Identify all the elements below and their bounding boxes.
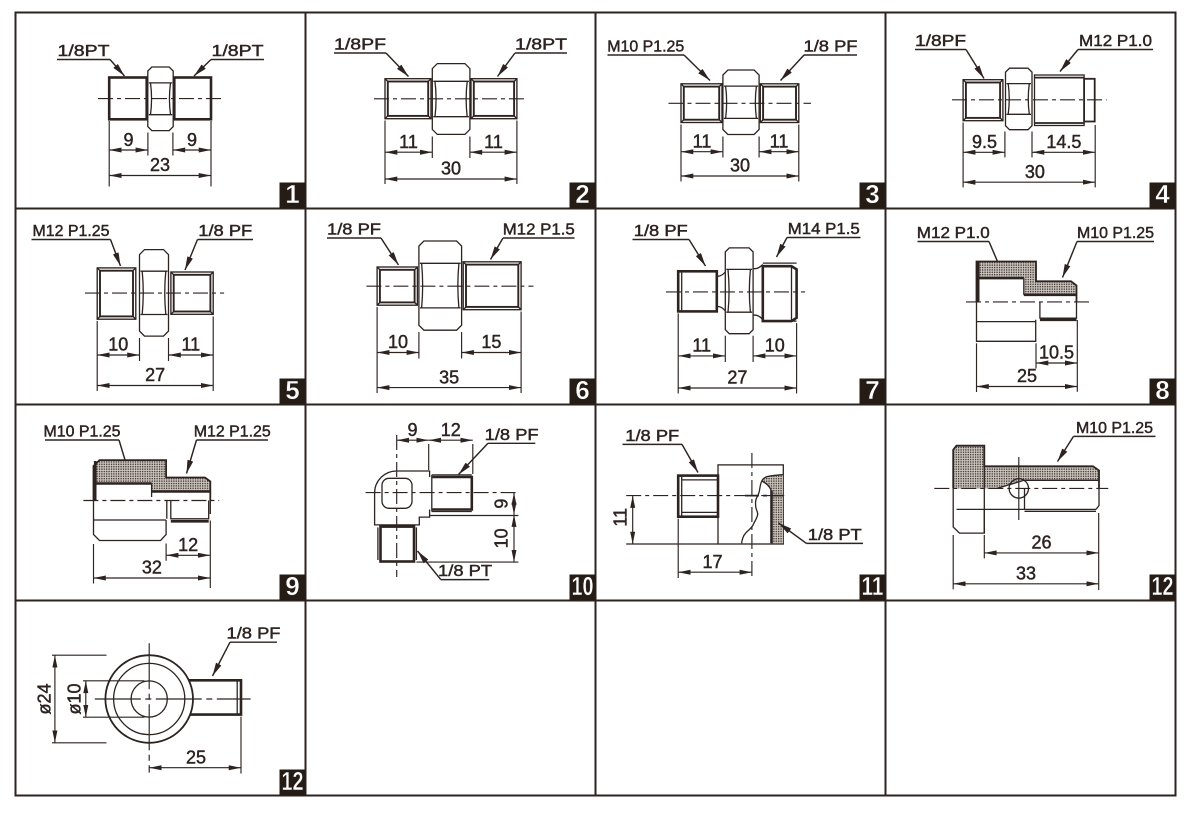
svg-text:M10 P1.25: M10 P1.25 [1077, 225, 1154, 242]
svg-text:1/8 PT: 1/8 PT [808, 527, 862, 544]
svg-text:30: 30 [730, 156, 750, 176]
svg-text:M10 P1.25: M10 P1.25 [607, 39, 684, 56]
svg-text:M12 P1.25: M12 P1.25 [33, 223, 110, 240]
svg-text:27: 27 [727, 368, 747, 388]
svg-text:1/8 PF: 1/8 PF [198, 223, 252, 240]
svg-text:14.5: 14.5 [1046, 132, 1081, 152]
svg-text:ø24: ø24 [34, 683, 54, 714]
svg-text:10: 10 [388, 332, 408, 352]
svg-text:9: 9 [187, 130, 197, 150]
svg-text:1/8PF: 1/8PF [915, 33, 966, 50]
svg-text:10: 10 [572, 571, 594, 601]
svg-text:11: 11 [611, 508, 631, 527]
svg-text:30: 30 [441, 159, 461, 179]
svg-text:9: 9 [492, 499, 512, 509]
svg-text:25: 25 [186, 747, 206, 767]
svg-text:M10 P1.25: M10 P1.25 [44, 424, 121, 441]
svg-text:10: 10 [108, 335, 128, 355]
svg-text:1/8PF: 1/8PF [334, 37, 386, 54]
svg-text:10.5: 10.5 [1039, 343, 1074, 363]
svg-text:4: 4 [1155, 179, 1170, 209]
svg-text:1/8PT: 1/8PT [58, 43, 110, 60]
svg-text:26: 26 [1031, 533, 1051, 553]
svg-text:M10 P1.25: M10 P1.25 [1076, 420, 1153, 437]
svg-text:M12 P1.0: M12 P1.0 [917, 225, 990, 242]
svg-text:11: 11 [399, 132, 418, 152]
svg-text:M14 P1.5: M14 P1.5 [788, 221, 860, 238]
svg-text:12: 12 [178, 535, 198, 555]
svg-text:1/8 PF: 1/8 PF [804, 39, 858, 56]
svg-text:35: 35 [439, 367, 459, 387]
svg-text:10: 10 [492, 528, 512, 548]
svg-text:8: 8 [1155, 375, 1169, 405]
svg-text:1/8PT: 1/8PT [212, 43, 264, 60]
svg-text:1/8 PF: 1/8 PF [227, 626, 281, 643]
svg-text:1/8 PF: 1/8 PF [625, 428, 679, 445]
svg-text:25: 25 [1017, 366, 1037, 386]
svg-text:12: 12 [441, 420, 461, 440]
svg-text:M12 P1.25: M12 P1.25 [194, 424, 271, 441]
svg-text:9: 9 [407, 420, 417, 440]
svg-text:12: 12 [282, 766, 304, 796]
svg-text:11: 11 [770, 132, 789, 152]
svg-text:12: 12 [1152, 571, 1174, 601]
svg-text:5: 5 [285, 375, 299, 405]
svg-text:6: 6 [575, 375, 589, 405]
svg-text:30: 30 [1025, 162, 1045, 182]
svg-text:11: 11 [862, 571, 884, 601]
svg-text:9: 9 [123, 130, 133, 150]
svg-text:33: 33 [1016, 564, 1036, 584]
svg-text:9.5: 9.5 [972, 132, 997, 152]
svg-text:23: 23 [150, 155, 170, 175]
svg-text:32: 32 [142, 558, 162, 578]
svg-text:10: 10 [765, 336, 785, 356]
svg-text:ø10: ø10 [65, 683, 85, 714]
svg-text:1/8 PF: 1/8 PF [327, 222, 381, 239]
svg-text:1/8 PT: 1/8 PT [438, 563, 492, 580]
svg-text:7: 7 [865, 375, 879, 405]
svg-text:1/8 PF: 1/8 PF [634, 223, 688, 240]
svg-text:1: 1 [285, 179, 299, 209]
svg-text:11: 11 [181, 335, 200, 355]
svg-text:M12 P1.0: M12 P1.0 [1079, 33, 1152, 50]
svg-text:11: 11 [692, 336, 711, 356]
svg-text:2: 2 [575, 179, 589, 209]
svg-text:M12 P1.5: M12 P1.5 [503, 222, 575, 239]
svg-text:3: 3 [865, 179, 879, 209]
svg-text:15: 15 [481, 332, 501, 352]
svg-text:1/8 PF: 1/8 PF [485, 427, 539, 444]
svg-text:11: 11 [693, 132, 712, 152]
svg-text:1/8PT: 1/8PT [515, 37, 567, 54]
svg-text:17: 17 [702, 552, 722, 572]
svg-text:11: 11 [484, 132, 503, 152]
svg-text:9: 9 [285, 571, 299, 601]
svg-text:27: 27 [145, 365, 165, 385]
